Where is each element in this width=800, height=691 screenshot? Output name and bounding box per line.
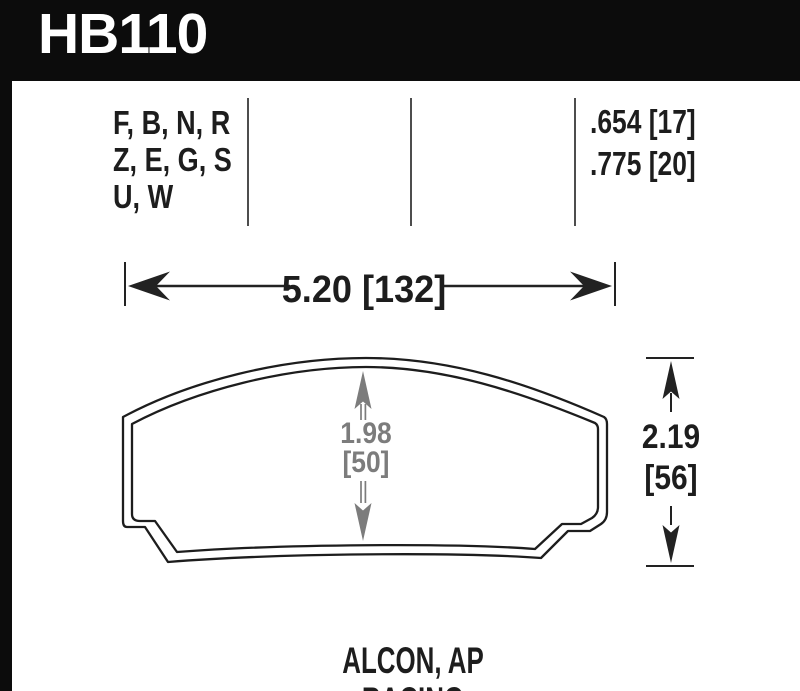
height-arrowhead-down — [663, 525, 680, 563]
friction-arrowhead-up — [355, 371, 372, 409]
pad-thickness-values: .654 [17] .775 [20] — [590, 101, 722, 185]
width-dimension-value: 5.20 [132] — [222, 270, 507, 310]
friction-height-value-mm: [50] — [278, 448, 454, 477]
pad-thickness-line-1: .654 [17] — [590, 101, 696, 143]
overall-height-label: 2.19 [56] — [571, 417, 771, 499]
compound-codes-line-1: F, B, N, R — [113, 104, 232, 141]
overall-height-value-mm: [56] — [583, 458, 759, 499]
manufacturer-caption: ALCON, AP RACING — [263, 641, 563, 691]
pad-thickness-line-2: .775 [20] — [590, 143, 696, 185]
friction-height-label: 1.98 [50] — [266, 419, 466, 477]
friction-arrowhead-down — [355, 503, 372, 541]
spec-column-dividers — [248, 98, 575, 226]
manufacturer-caption-text: ALCON, AP RACING — [308, 641, 518, 691]
compound-codes-line-2: Z, E, G, S — [113, 141, 232, 178]
overall-height-value: 2.19 — [583, 417, 759, 458]
brake-pad-spec-sheet: HB110 — [0, 0, 800, 691]
compound-codes-line-3: U, W — [113, 178, 232, 215]
width-dimension-label: 5.20 [132] — [214, 270, 514, 310]
compound-codes: F, B, N, R Z, E, G, S U, W — [113, 104, 258, 215]
friction-height-value: 1.98 — [278, 419, 454, 448]
